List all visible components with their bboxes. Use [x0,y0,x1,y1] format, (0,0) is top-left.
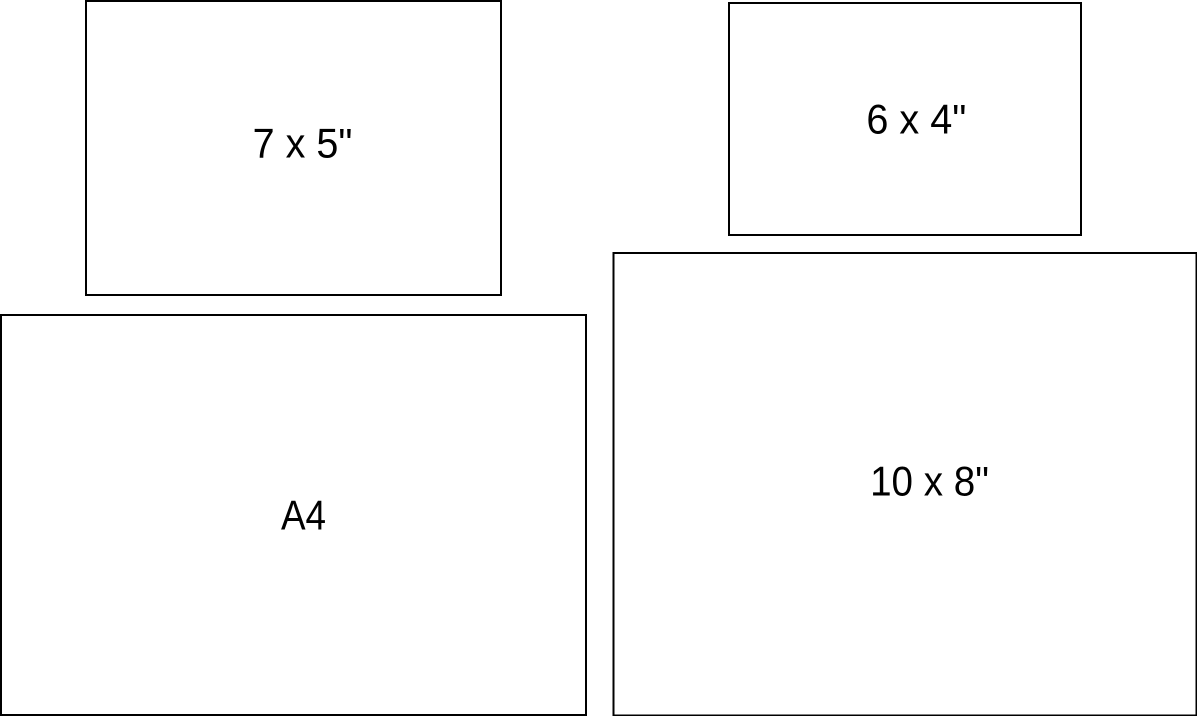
svg-text:7 x 5": 7 x 5" [253,119,353,166]
svg-text:A4: A4 [281,492,326,539]
svg-text:6 x 4": 6 x 4" [866,95,966,142]
svg-text:10 x 8": 10 x 8" [870,457,989,505]
